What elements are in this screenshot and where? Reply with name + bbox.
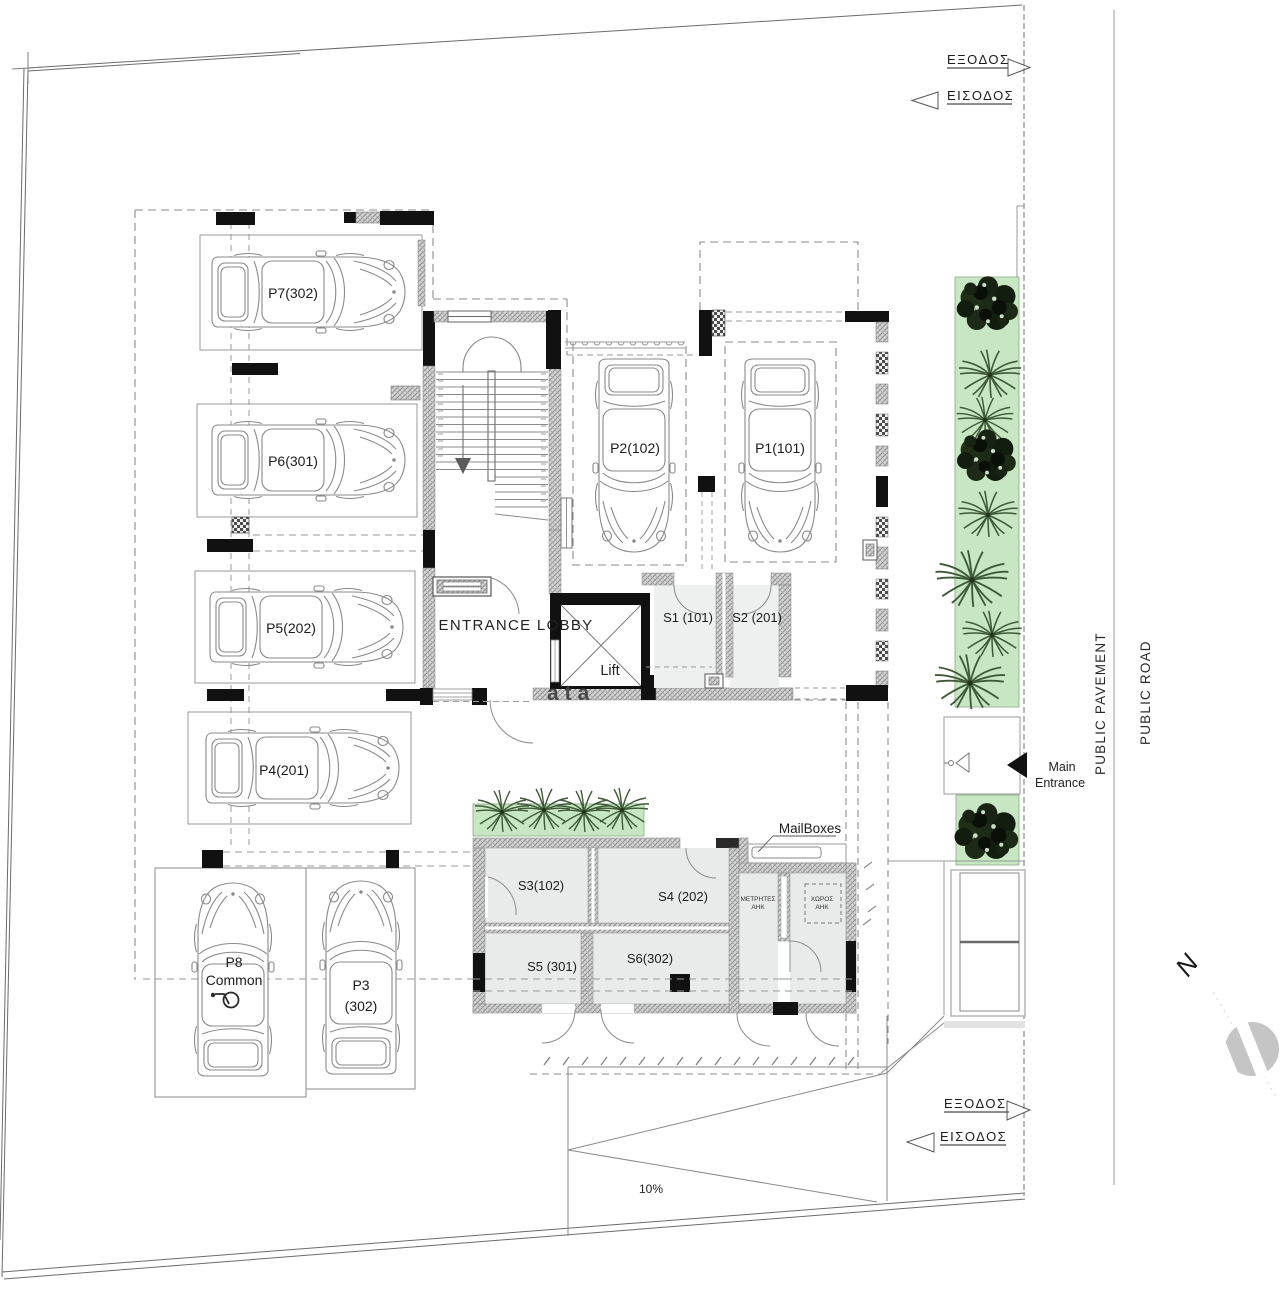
svg-text:S2 (201): S2 (201) [732,610,782,625]
svg-text:P6(301): P6(301) [268,453,318,469]
svg-text:ΕΙΣΟΔΟΣ: ΕΙΣΟΔΟΣ [940,1129,1007,1144]
svg-text:PUBLIC PAVEMENT: PUBLIC PAVEMENT [1093,632,1108,775]
svg-text:ΑΗΚ: ΑΗΚ [751,904,765,911]
svg-text:MailBoxes: MailBoxes [779,821,842,836]
svg-text:Common: Common [206,972,263,988]
svg-text:Entrance: Entrance [1035,776,1085,790]
svg-text:ata: ata [547,682,595,705]
svg-text:P2(102): P2(102) [610,440,660,456]
svg-text:(302): (302) [345,998,378,1014]
svg-text:S4 (202): S4 (202) [658,889,708,904]
svg-text:10%: 10% [639,1182,663,1196]
svg-text:ΜΕΤΡΗΤΕΣ: ΜΕΤΡΗΤΕΣ [740,896,775,903]
svg-text:P5(202): P5(202) [266,620,316,636]
svg-text:S6(302): S6(302) [627,951,673,966]
svg-text:ENTRANCE LOBBY: ENTRANCE LOBBY [439,617,594,634]
svg-text:PUBLIC ROAD: PUBLIC ROAD [1138,640,1153,745]
svg-text:ΧΩΡΟΣ: ΧΩΡΟΣ [811,896,834,903]
svg-text:Main: Main [1048,760,1075,774]
svg-text:ΕΞΟΔΟΣ: ΕΞΟΔΟΣ [944,1096,1007,1111]
svg-text:P7(302): P7(302) [268,285,318,301]
svg-text:P3: P3 [352,977,369,993]
svg-text:P8: P8 [225,954,242,970]
svg-text:Lift: Lift [600,663,619,679]
svg-text:ΕΞΟΔΟΣ: ΕΞΟΔΟΣ [947,52,1010,67]
svg-text:S5 (301): S5 (301) [527,959,577,974]
svg-text:ΑΗΚ: ΑΗΚ [815,904,829,911]
svg-text:S1 (101): S1 (101) [663,610,713,625]
svg-text:P4(201): P4(201) [259,762,309,778]
svg-text:ΕΙΣΟΔΟΣ: ΕΙΣΟΔΟΣ [947,88,1014,103]
svg-text:P1(101): P1(101) [755,440,805,456]
svg-text:S3(102): S3(102) [518,878,564,893]
